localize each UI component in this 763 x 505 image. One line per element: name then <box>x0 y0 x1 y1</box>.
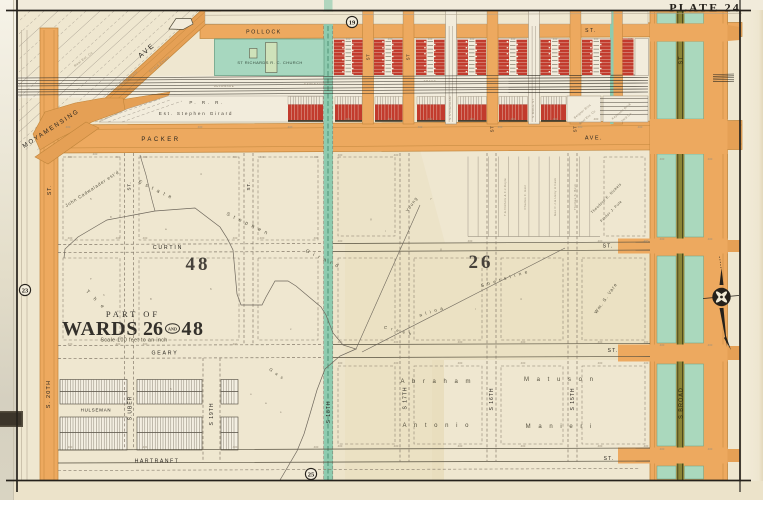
svg-text:ST: ST <box>490 126 495 132</box>
svg-text:ST.: ST. <box>585 28 597 34</box>
svg-text:400: 400 <box>143 236 148 240</box>
svg-text:400: 400 <box>511 37 516 41</box>
svg-text:400: 400 <box>511 117 516 121</box>
svg-text:400: 400 <box>644 444 649 448</box>
svg-text:400: 400 <box>314 155 319 159</box>
svg-text:400: 400 <box>143 155 148 159</box>
svg-text:400: 400 <box>233 155 238 159</box>
svg-text:Charles F. Hein: Charles F. Hein <box>523 184 527 209</box>
svg-text:A b r a h a m: A b r a h a m <box>400 379 473 385</box>
svg-text:M a t u s o n: M a t u s o n <box>524 377 596 383</box>
svg-text:HULSEMAN: HULSEMAN <box>81 408 112 413</box>
svg-text:400: 400 <box>418 125 423 129</box>
svg-text:M a n i e r i: M a n i e r i <box>526 424 595 430</box>
svg-text:ST.: ST. <box>608 348 619 354</box>
svg-text:400: 400 <box>468 239 473 243</box>
svg-text:400: 400 <box>394 340 399 344</box>
svg-text:400: 400 <box>498 125 503 129</box>
svg-text:400: 400 <box>553 117 558 121</box>
svg-text:400: 400 <box>233 236 238 240</box>
svg-text:400: 400 <box>521 340 526 344</box>
svg-text:400: 400 <box>394 444 399 448</box>
svg-text:400: 400 <box>708 237 713 241</box>
svg-text:400: 400 <box>314 236 319 240</box>
svg-text:400: 400 <box>260 236 265 240</box>
svg-text:400: 400 <box>428 117 433 121</box>
svg-text:23: 23 <box>22 287 29 294</box>
svg-text:P. R. R.: P. R. R. <box>189 100 224 105</box>
svg-text:ST.: ST. <box>47 185 53 195</box>
svg-text:400: 400 <box>116 155 121 159</box>
svg-text:S. 20TH: S. 20TH <box>46 380 52 409</box>
svg-text:DELAWARE: DELAWARE <box>214 84 235 88</box>
svg-text:400: 400 <box>660 157 665 161</box>
svg-text:400: 400 <box>143 342 148 346</box>
svg-text:TRACK: TRACK <box>424 79 437 83</box>
svg-text:400: 400 <box>394 361 399 365</box>
svg-text:400: 400 <box>68 445 73 449</box>
svg-text:400: 400 <box>598 340 603 344</box>
svg-text:400: 400 <box>470 117 475 121</box>
svg-text:400: 400 <box>346 117 351 121</box>
svg-text:400: 400 <box>388 117 393 121</box>
svg-text:ST.: ST. <box>603 244 614 250</box>
svg-text:S.MOLE ST: S.MOLE ST <box>531 98 535 118</box>
svg-text:A n t o n i o: A n t o n i o <box>402 423 471 429</box>
svg-text:400: 400 <box>260 155 265 159</box>
svg-text:POLLOCK: POLLOCK <box>246 30 282 36</box>
svg-text:400: 400 <box>660 237 665 241</box>
svg-text:400: 400 <box>143 445 148 449</box>
svg-text:400: 400 <box>660 343 665 347</box>
svg-text:400: 400 <box>233 445 238 449</box>
svg-text:400: 400 <box>638 125 643 129</box>
svg-text:400: 400 <box>288 125 293 129</box>
svg-text:400: 400 <box>553 37 558 41</box>
svg-text:400: 400 <box>388 37 393 41</box>
svg-text:PLATE 24: PLATE 24 <box>669 1 741 15</box>
svg-text:ST: ST <box>679 55 685 64</box>
svg-text:26: 26 <box>469 252 494 273</box>
svg-text:Geo C.J.& Heny H Fask: Geo C.J.& Heny H Fask <box>553 178 557 217</box>
svg-text:19: 19 <box>349 19 356 26</box>
svg-text:400: 400 <box>708 343 713 347</box>
svg-text:400: 400 <box>66 125 71 129</box>
svg-text:400: 400 <box>594 37 599 41</box>
svg-text:PACKER: PACKER <box>141 137 180 143</box>
svg-text:400: 400 <box>644 340 649 344</box>
svg-text:400: 400 <box>116 236 121 240</box>
svg-text:CURTIN: CURTIN <box>153 245 183 251</box>
svg-text:GEARY: GEARY <box>151 351 178 357</box>
svg-text:ST.: ST. <box>246 182 251 191</box>
svg-text:400: 400 <box>578 125 583 129</box>
svg-text:ST.: ST. <box>604 456 615 462</box>
svg-text:400: 400 <box>68 236 73 240</box>
svg-text:400: 400 <box>598 361 603 365</box>
svg-text:400: 400 <box>68 342 73 346</box>
svg-text:S BROAD: S BROAD <box>679 387 685 419</box>
svg-text:400: 400 <box>644 361 649 365</box>
svg-text:400: 400 <box>598 239 603 243</box>
svg-text:400: 400 <box>428 37 433 41</box>
svg-text:HARTRANFT: HARTRANFT <box>135 459 180 465</box>
svg-text:48: 48 <box>186 254 211 275</box>
svg-text:ST.: ST. <box>127 182 132 191</box>
svg-text:400: 400 <box>338 153 343 157</box>
svg-text:400: 400 <box>708 447 713 451</box>
svg-text:400: 400 <box>338 361 343 365</box>
svg-text:Scale 100 feet to an inch: Scale 100 feet to an inch <box>100 338 167 344</box>
svg-text:400: 400 <box>458 340 463 344</box>
svg-text:400: 400 <box>314 445 319 449</box>
svg-text:400: 400 <box>598 444 603 448</box>
svg-text:S 18TH: S 18TH <box>326 401 332 424</box>
svg-text:400: 400 <box>198 125 203 129</box>
svg-text:r: r <box>385 229 386 233</box>
svg-text:400: 400 <box>68 155 73 159</box>
svg-text:S 17TH: S 17TH <box>403 387 409 410</box>
svg-text:S 16TH: S 16TH <box>489 388 495 411</box>
svg-text:25: 25 <box>308 471 315 478</box>
svg-text:400: 400 <box>394 153 399 157</box>
svg-text:400: 400 <box>338 444 343 448</box>
svg-text:400: 400 <box>628 37 633 41</box>
svg-text:AND: AND <box>168 327 177 332</box>
svg-text:400: 400 <box>338 340 343 344</box>
svg-text:S 19TH: S 19TH <box>209 403 215 426</box>
svg-text:S.UBER: S.UBER <box>128 396 134 421</box>
svg-text:EXTENSION: EXTENSION <box>304 82 326 86</box>
svg-text:T.E.Nichols & F.J.Doyle: T.E.Nichols & F.J.Doyle <box>503 178 507 216</box>
svg-text:400: 400 <box>644 239 649 243</box>
svg-text:S.SYDENHAM: S.SYDENHAM <box>448 96 452 120</box>
svg-text:400: 400 <box>594 117 599 121</box>
svg-text:400: 400 <box>116 342 121 346</box>
svg-text:T: T <box>90 277 92 281</box>
svg-text:400: 400 <box>338 239 343 243</box>
svg-text:400: 400 <box>708 157 713 161</box>
svg-text:400: 400 <box>93 152 98 156</box>
svg-text:400: 400 <box>458 444 463 448</box>
svg-text:ST: ST <box>406 54 411 60</box>
svg-text:400: 400 <box>521 444 526 448</box>
svg-text:400: 400 <box>233 342 238 346</box>
svg-text:400: 400 <box>346 37 351 41</box>
svg-text:ST RICHARDS R. C. CHURCH: ST RICHARDS R. C. CHURCH <box>237 60 302 65</box>
svg-text:400: 400 <box>660 447 665 451</box>
svg-text:48: 48 <box>182 318 205 340</box>
svg-text:Est. Stephen Girard: Est. Stephen Girard <box>159 111 234 116</box>
svg-text:Thomas S. Boyk: Thomas S. Boyk <box>573 184 577 210</box>
svg-text:400: 400 <box>458 361 463 365</box>
svg-text:400: 400 <box>470 37 475 41</box>
svg-text:400: 400 <box>521 361 526 365</box>
svg-text:AVE.: AVE. <box>585 136 603 142</box>
svg-text:S 15TH: S 15TH <box>570 388 576 411</box>
svg-text:ST: ST <box>366 54 371 60</box>
